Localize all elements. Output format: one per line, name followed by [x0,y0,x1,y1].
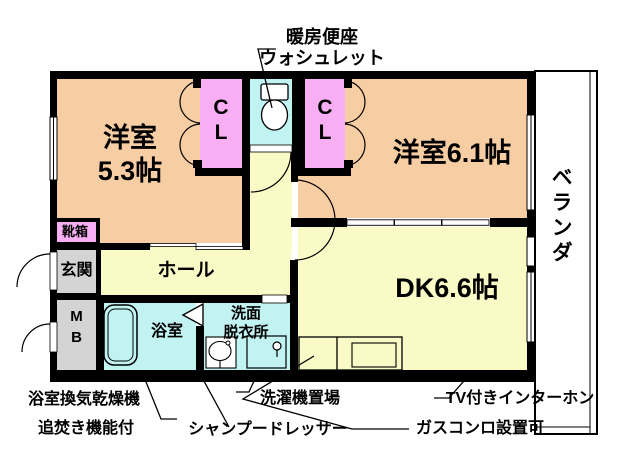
closet-left-line2: L [201,120,241,145]
meterbox-line1: M [57,306,96,327]
room-label-closet-right: C L [305,95,345,145]
room-label-meterbox: M B [57,306,96,348]
entrance-door-arc [17,254,50,287]
annotation-bath-note1: 浴室換気乾燥機 [4,391,164,409]
closet-left-line1: C [201,95,241,120]
toilet-note-line1: 暖房便座 [232,27,412,48]
room-label-western-61: 洋室6.1帖 [352,137,552,170]
meterbox-line2: B [57,327,96,348]
washroom-line2: 脱衣所 [206,323,286,342]
annotation-toilet-note: 暖房便座 ウォシュレット [232,27,412,69]
room-label-veranda: ベランダ [548,166,572,266]
room-label-western-53: 洋室 5.3帖 [60,122,200,188]
room-label-western-53-line1: 洋室 [60,122,200,155]
meterbox-door-arc [22,324,50,352]
annotation-intercom-note: TV付きインターホン [430,390,610,408]
annotation-gas-note: ガスコンロ設置可 [400,420,560,438]
room-label-closet-left: C L [201,95,241,145]
closet-right-line2: L [305,120,345,145]
room-label-western-53-line2: 5.3帖 [60,155,200,188]
kitchen-counter-icon [299,337,402,370]
room-label-dk: DK6.6帖 [347,272,547,305]
floor-plan: 洋室 5.3帖 洋室6.1帖 DK6.6帖 ホール 玄関 靴箱 M B 浴室 洗… [0,0,640,456]
annotation-bath-note2: 追焚き機能付 [6,420,166,438]
bathtub-icon [104,305,137,365]
room-label-bathroom: 浴室 [137,323,197,341]
closet-right-line1: C [305,95,345,120]
room-label-shoebox: 靴箱 [54,225,96,240]
annotation-laundry-note: 洗濯機置場 [230,390,370,408]
toilet-icon [261,84,288,130]
washroom-line1: 洗面 [206,304,286,323]
room-label-hall: ホール [136,260,236,282]
toilet-door-arc [251,152,291,192]
walls [50,71,535,382]
room-label-washroom: 洗面 脱衣所 [206,304,286,342]
toilet-note-line2: ウォシュレット [232,48,412,69]
annotation-shampoo-note: シャンプードレッサー [178,421,358,439]
room-label-entrance: 玄関 [57,262,96,280]
